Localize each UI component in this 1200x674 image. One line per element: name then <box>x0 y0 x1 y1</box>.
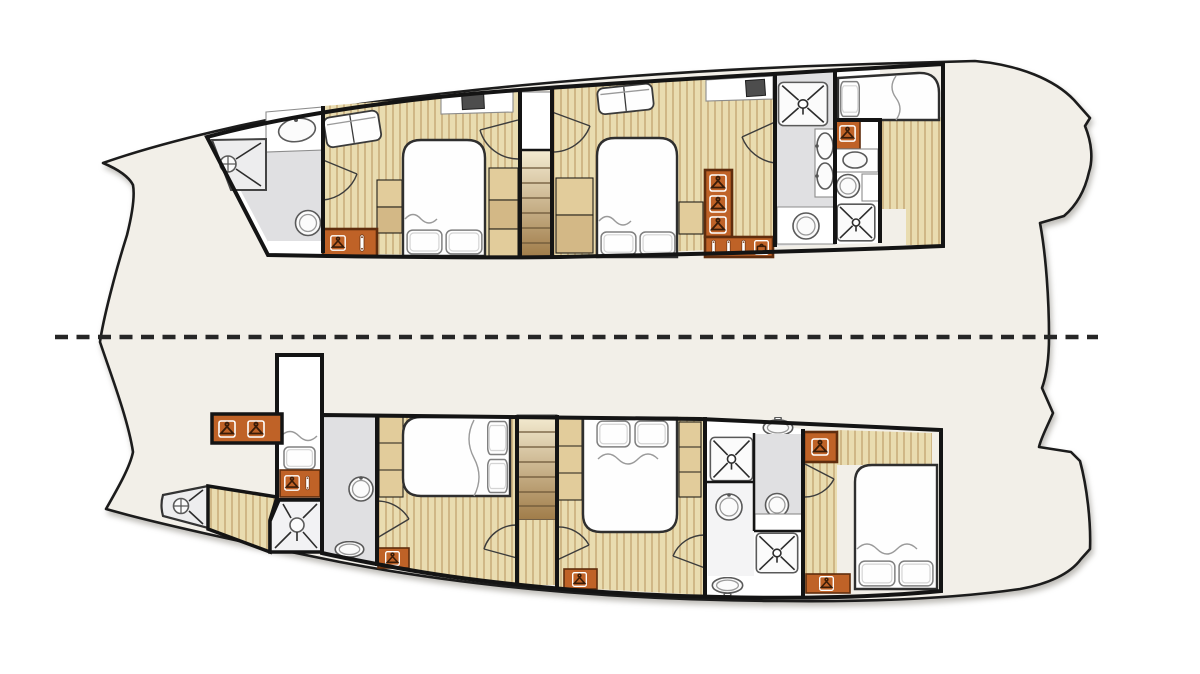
floor-plan-page <box>0 0 1200 674</box>
upper-companionway-stairs <box>520 92 552 257</box>
lower-forward-cabin <box>377 415 517 585</box>
catamaran-floor-plan <box>0 0 1200 674</box>
pillow <box>407 230 442 254</box>
shower <box>756 533 797 572</box>
pillow <box>597 421 630 447</box>
upper-forward-cabin <box>323 90 520 257</box>
lower-bow-corridor <box>208 486 277 552</box>
upper-mid-cabin <box>552 75 775 257</box>
shower <box>710 437 752 480</box>
washbasin <box>817 163 833 189</box>
lower-aft-cabin <box>804 430 937 593</box>
pillow <box>488 460 508 493</box>
pillow <box>488 422 508 455</box>
pillow <box>859 561 895 586</box>
wardrobe <box>323 229 377 256</box>
upper-hull <box>207 64 943 257</box>
washbasin <box>817 133 833 159</box>
hanging-lockers <box>705 170 732 237</box>
lower-forward-bathroom <box>322 415 377 566</box>
pillow <box>601 232 636 255</box>
pillow <box>640 232 675 255</box>
pillow <box>284 447 315 469</box>
washbasin <box>843 152 867 168</box>
shower <box>837 204 875 241</box>
lower-mid-cabin <box>557 416 705 595</box>
sofa <box>597 83 654 115</box>
pillow <box>635 421 668 447</box>
pillow <box>899 561 933 586</box>
lower-companionway-stairs <box>517 415 557 585</box>
upper-aft-bathroom <box>775 71 835 246</box>
lower-aft-bathroom <box>705 417 803 596</box>
lower-forward-shower-room <box>270 500 322 552</box>
pillow <box>841 82 860 117</box>
tv <box>745 79 765 96</box>
pillow <box>446 230 482 254</box>
shower <box>779 82 828 125</box>
lower-bow-lockers <box>212 414 282 443</box>
